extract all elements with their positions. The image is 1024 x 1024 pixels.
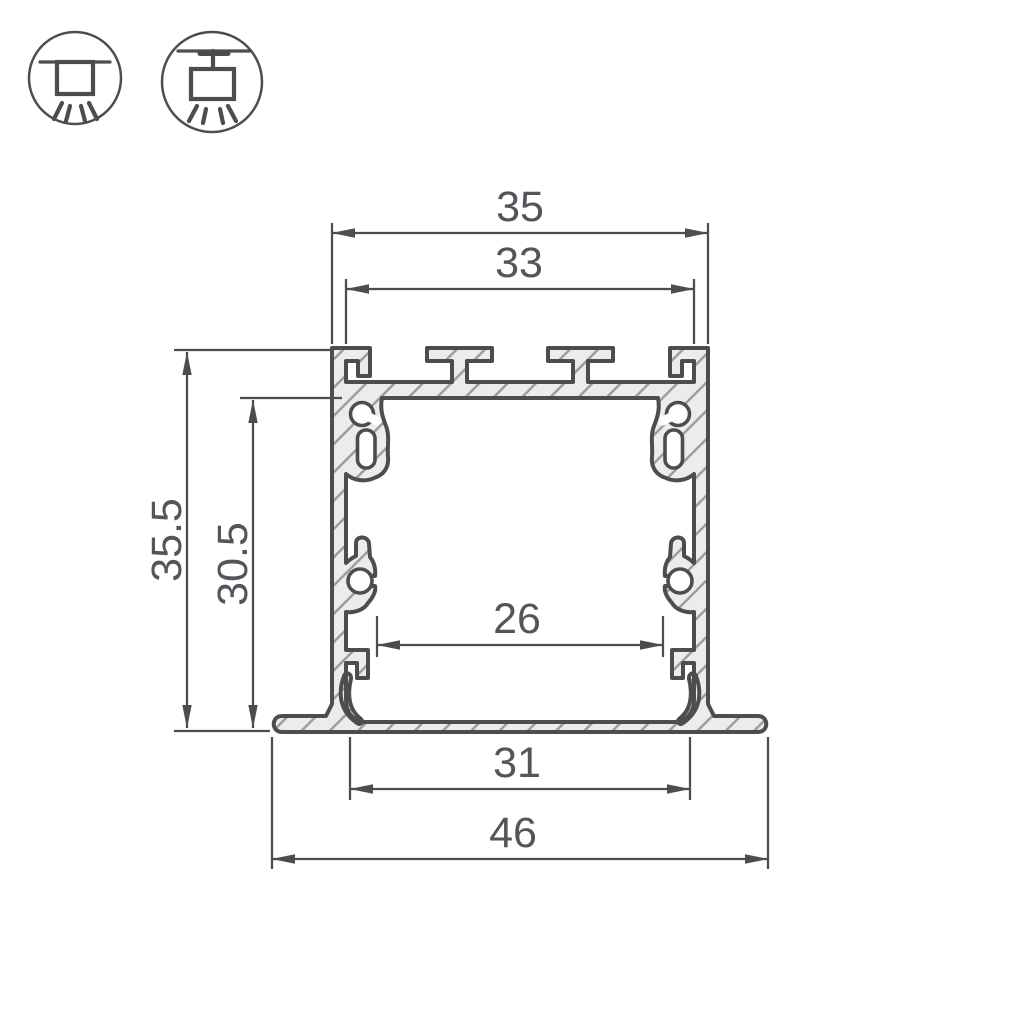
mount-icons: [29, 32, 262, 132]
dimension-inner-height: 30.5: [209, 398, 342, 728]
dim-label-inner-height: 30.5: [209, 522, 257, 606]
dimension-inner-width: 26: [377, 595, 663, 657]
recessed-mount-icon: [29, 32, 121, 124]
light-rays-icon: [54, 103, 97, 121]
dim-label-overall-width: 46: [489, 809, 537, 857]
dimensions: 35 33 35.5 30.5 26: [143, 183, 768, 869]
surface-mount-icon: [162, 32, 262, 132]
dim-label-inner-width: 26: [493, 595, 541, 643]
dimension-bottom-inner-width: 31: [350, 737, 690, 800]
dim-label-outer-height: 35.5: [143, 498, 191, 582]
dim-label-bottom-inner: 31: [493, 739, 541, 787]
dimension-top-inner-width: 33: [346, 239, 694, 344]
technical-drawing-page: 35 33 35.5 30.5 26: [0, 0, 1024, 1024]
dim-label-top-outer: 35: [496, 183, 544, 231]
light-rays-icon: [189, 106, 236, 123]
profile-drawing: 35 33 35.5 30.5 26: [0, 0, 1024, 1024]
dim-label-top-inner: 33: [495, 239, 543, 287]
